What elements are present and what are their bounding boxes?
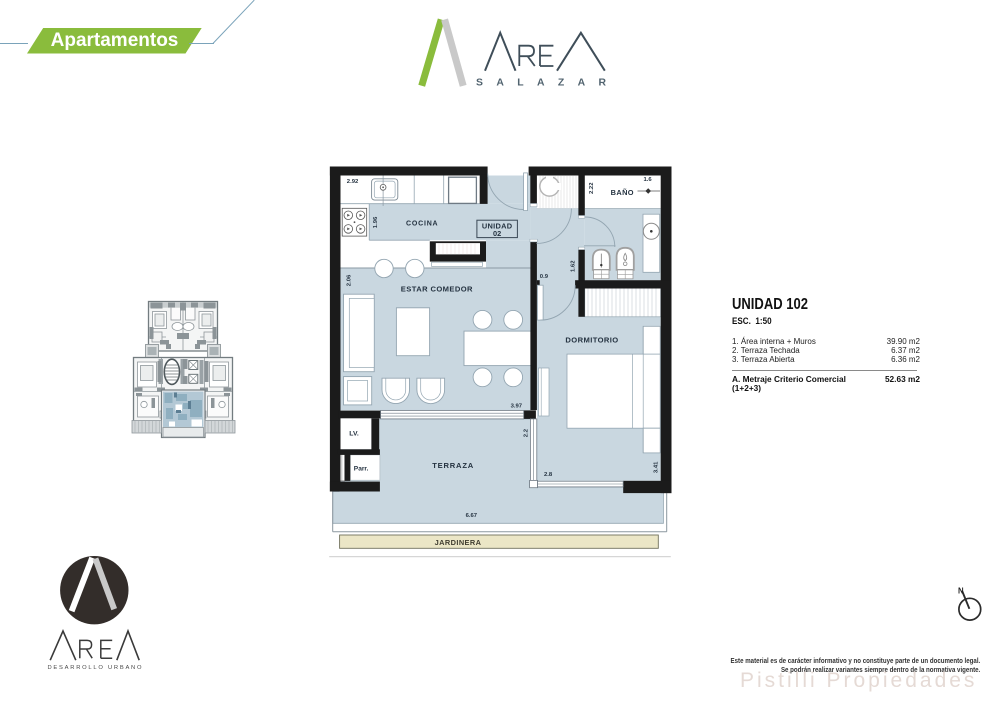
svg-text:2.22: 2.22	[589, 182, 595, 194]
svg-text:DESARROLLO URBANO: DESARROLLO URBANO	[48, 665, 142, 671]
svg-text:DORMITORIO: DORMITORIO	[565, 336, 618, 345]
svg-text:3.97: 3.97	[511, 404, 523, 410]
svg-text:BAÑO: BAÑO	[611, 188, 634, 197]
svg-text:1.96: 1.96	[373, 216, 379, 228]
svg-text:2.06: 2.06	[347, 274, 353, 286]
svg-text:2.2: 2.2	[524, 428, 530, 437]
svg-text:1.6: 1.6	[644, 177, 653, 183]
svg-text:ESTAR COMEDOR: ESTAR COMEDOR	[401, 285, 473, 294]
svg-text:0.9: 0.9	[540, 274, 549, 280]
svg-text:3.41: 3.41	[654, 461, 660, 473]
svg-text:2.92: 2.92	[347, 179, 359, 185]
svg-text:COCINA: COCINA	[406, 220, 438, 227]
svg-text:N: N	[958, 586, 964, 595]
svg-text:JARDINERA: JARDINERA	[435, 538, 482, 547]
svg-text:6.67: 6.67	[466, 513, 478, 519]
svg-text:LV.: LV.	[349, 431, 359, 438]
svg-text:SALAZAR: SALAZAR	[476, 77, 606, 88]
svg-text:1.62: 1.62	[571, 260, 577, 272]
svg-text:2.8: 2.8	[544, 472, 553, 478]
svg-text:02: 02	[493, 229, 501, 238]
svg-text:TERRAZA: TERRAZA	[432, 461, 474, 470]
svg-text:Parr.: Parr.	[354, 466, 369, 473]
